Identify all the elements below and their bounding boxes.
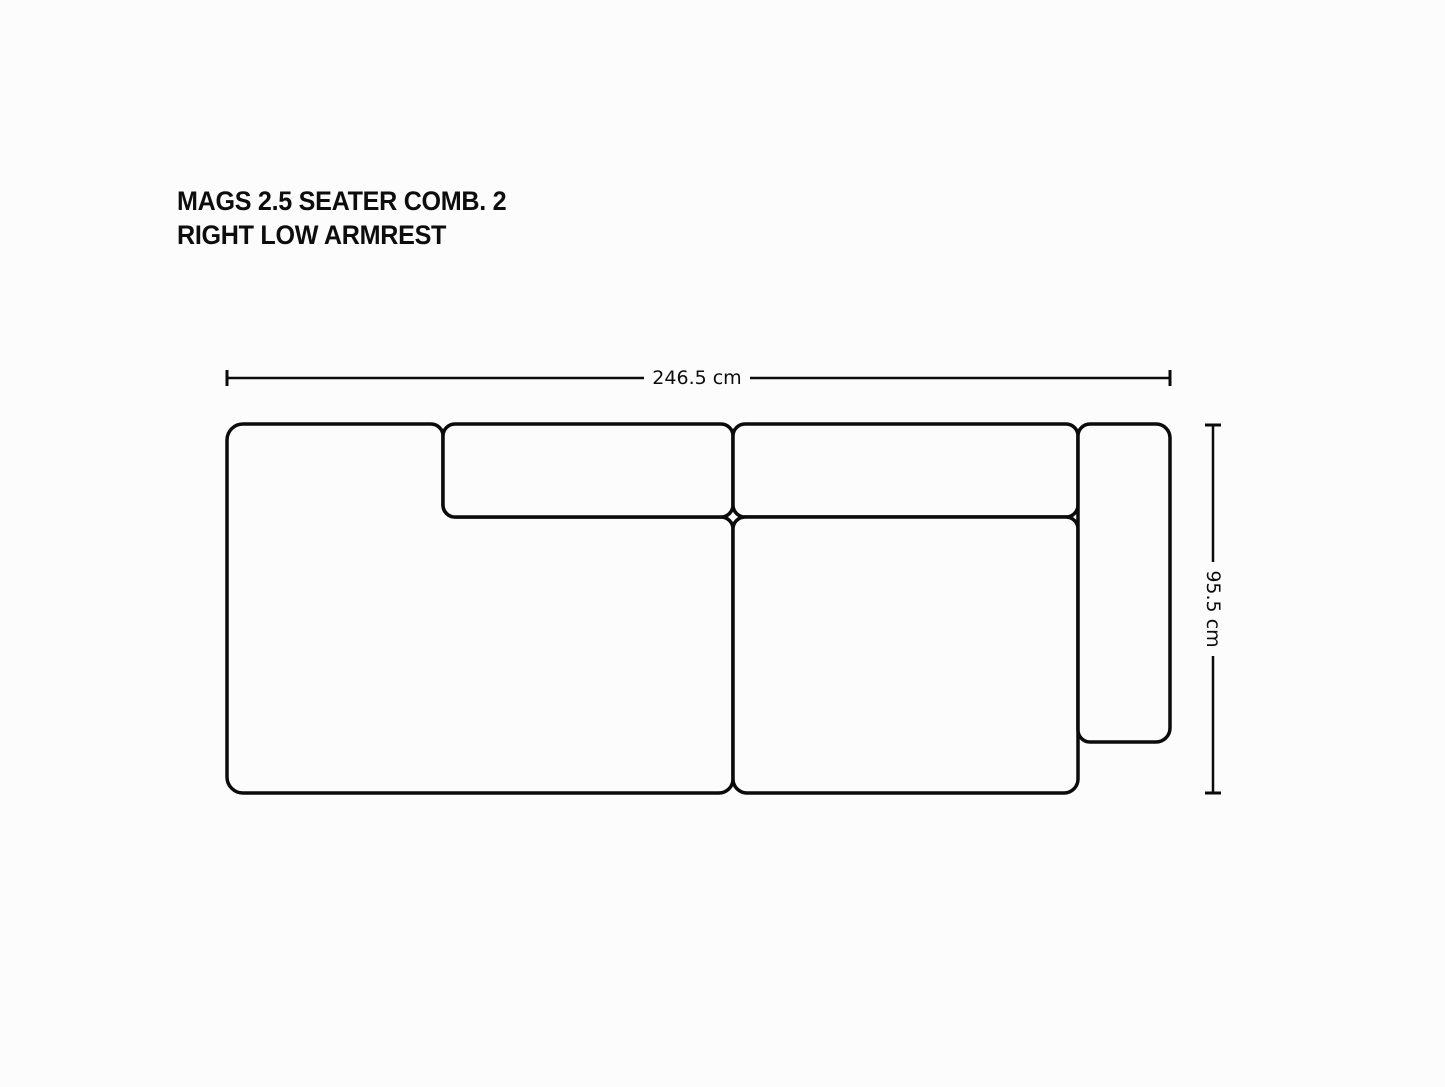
product-drawing-page: MAGS 2.5 SEATER COMB. 2 RIGHT LOW ARMRES… <box>0 0 1445 1087</box>
backrest-cushion-left <box>443 424 733 517</box>
backrest-cushion-right <box>733 424 1078 517</box>
seat-cushion-right <box>733 517 1078 793</box>
height-dimension-label: 95.5 cm <box>1202 570 1224 647</box>
sofa-top-view-diagram <box>0 0 1445 1087</box>
width-dimension-label: 246.5 cm <box>652 367 741 389</box>
right-low-armrest <box>1078 424 1170 742</box>
